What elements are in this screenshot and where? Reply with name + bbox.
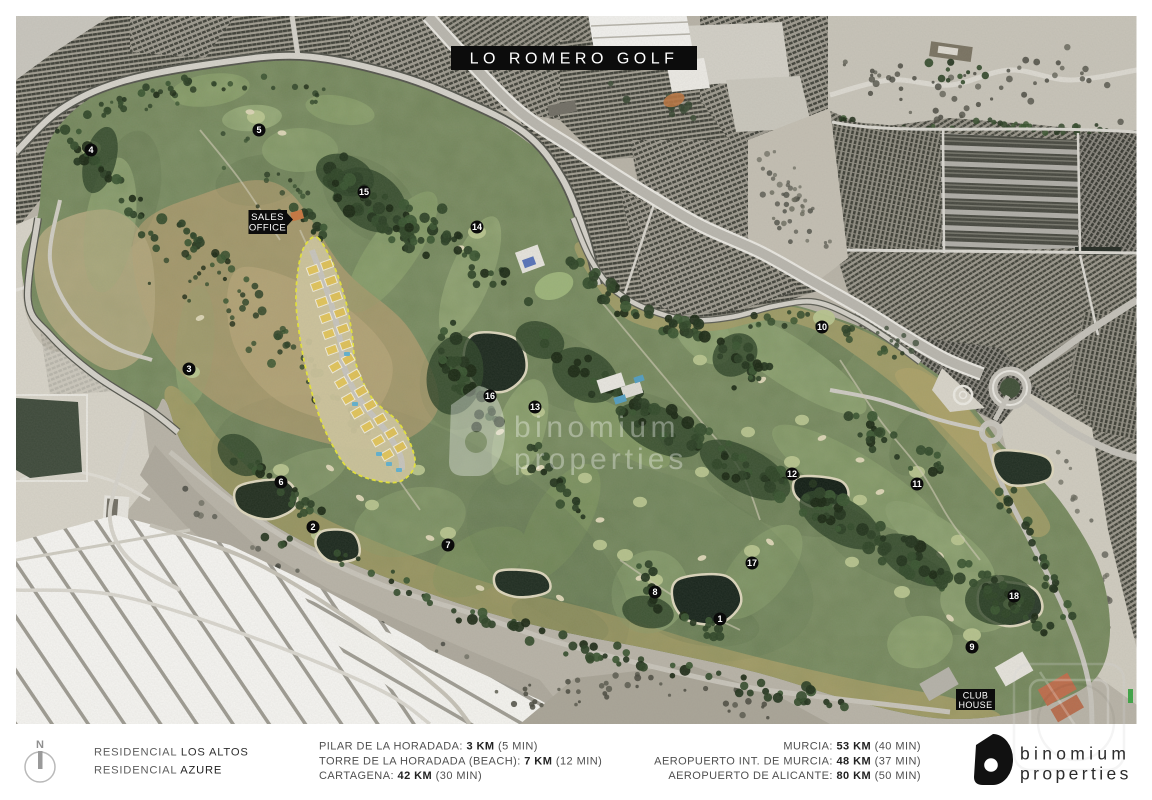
svg-text:properties: properties [1020,764,1132,784]
svg-text:SALES: SALES [251,212,284,223]
svg-text:HOUSE: HOUSE [958,700,992,710]
svg-text:16: 16 [485,391,495,401]
svg-text:14: 14 [472,222,482,232]
svg-text:RESIDENCIAL AZURE: RESIDENCIAL AZURE [94,765,222,777]
svg-text:13: 13 [530,402,540,412]
svg-text:OFFICE: OFFICE [249,223,286,234]
svg-text:1: 1 [717,614,722,624]
svg-text:18: 18 [1009,591,1019,601]
svg-text:3: 3 [186,364,191,374]
svg-text:11: 11 [912,479,922,489]
svg-text:RESIDENCIAL LOS ALTOS: RESIDENCIAL LOS ALTOS [94,747,249,759]
svg-text:TORRE DE LA HORADADA (BEACH):: TORRE DE LA HORADADA (BEACH): 7 KM (12 M… [319,755,602,767]
svg-text:AEROPUERTO INT. DE MURCIA: 48: AEROPUERTO INT. DE MURCIA: 48 KM (37 MIN… [654,755,921,767]
svg-text:LO ROMERO GOLF: LO ROMERO GOLF [470,51,679,68]
svg-text:6: 6 [278,477,283,487]
svg-text:10: 10 [817,322,827,332]
svg-text:CLUB: CLUB [963,691,989,701]
svg-text:17: 17 [747,558,757,568]
svg-text:4: 4 [88,145,93,155]
svg-text:MURCIA: 53 KM (40 MIN): MURCIA: 53 KM (40 MIN) [783,741,921,753]
svg-text:9: 9 [969,642,974,652]
svg-text:PILAR DE LA HORADADA: 3 KM (5: PILAR DE LA HORADADA: 3 KM (5 MIN) [319,741,538,753]
svg-text:AEROPUERTO DE ALICANTE: 80 KM: AEROPUERTO DE ALICANTE: 80 KM (50 MIN) [668,770,921,782]
svg-text:2: 2 [310,522,315,532]
svg-text:15: 15 [359,187,369,197]
svg-text:properties: properties [514,443,687,476]
svg-text:binomium: binomium [514,411,680,444]
svg-text:CARTAGENA: 42 KM (30 MIN): CARTAGENA: 42 KM (30 MIN) [319,770,482,782]
svg-text:binomium: binomium [1020,744,1130,764]
svg-text:N: N [36,739,44,751]
svg-text:5: 5 [256,125,261,135]
svg-text:7: 7 [445,540,450,550]
svg-text:8: 8 [652,587,657,597]
svg-text:12: 12 [787,469,797,479]
